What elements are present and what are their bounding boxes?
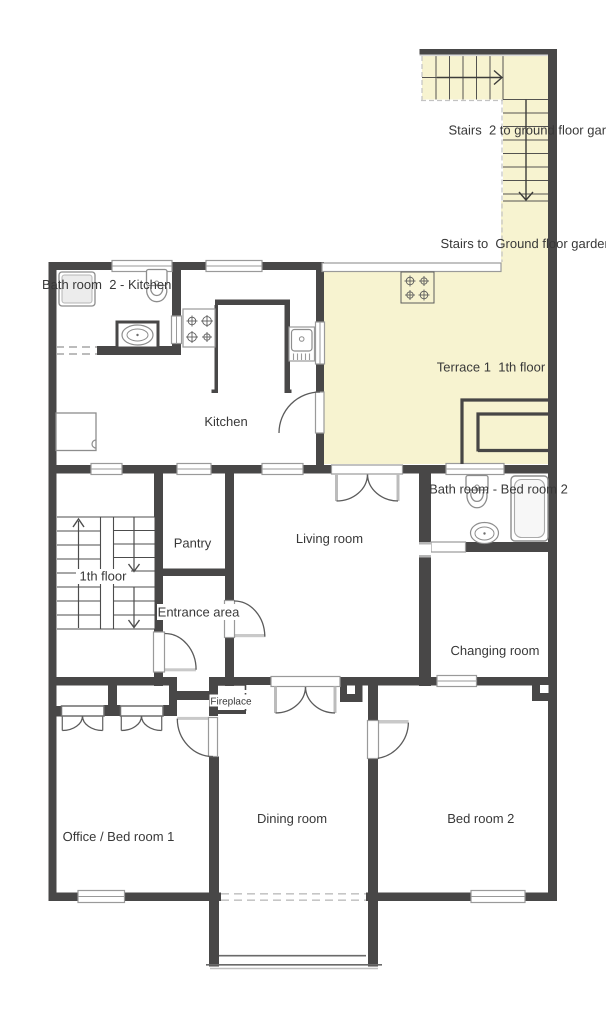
svg-text:Entrance area: Entrance area — [158, 605, 240, 620]
svg-text:Terrace 1 1th floor: Terrace 1 1th floor — [437, 360, 546, 375]
svg-text:Stairs 2 to ground floor gard: Stairs 2 to ground floor garden — [449, 123, 606, 138]
svg-text:Dining room: Dining room — [257, 811, 327, 826]
svg-text:Kitchen: Kitchen — [204, 414, 247, 429]
svg-text:Bed room 2: Bed room 2 — [447, 811, 514, 826]
svg-text:Changing room: Changing room — [451, 643, 540, 658]
svg-text:Office / Bed room 1: Office / Bed room 1 — [63, 829, 175, 844]
svg-text:Bath room 2 - Kitchen: Bath room 2 - Kitchen — [42, 277, 171, 292]
svg-text:Fireplace: Fireplace — [210, 696, 252, 707]
svg-text:Pantry: Pantry — [174, 536, 212, 551]
svg-text:Stairs to Ground floor garden: Stairs to Ground floor garden — [441, 236, 606, 251]
svg-text:Living room: Living room — [296, 531, 363, 546]
svg-text:Bath room - Bed room 2: Bath room - Bed room 2 — [429, 482, 568, 497]
svg-text:1th floor: 1th floor — [80, 569, 128, 584]
